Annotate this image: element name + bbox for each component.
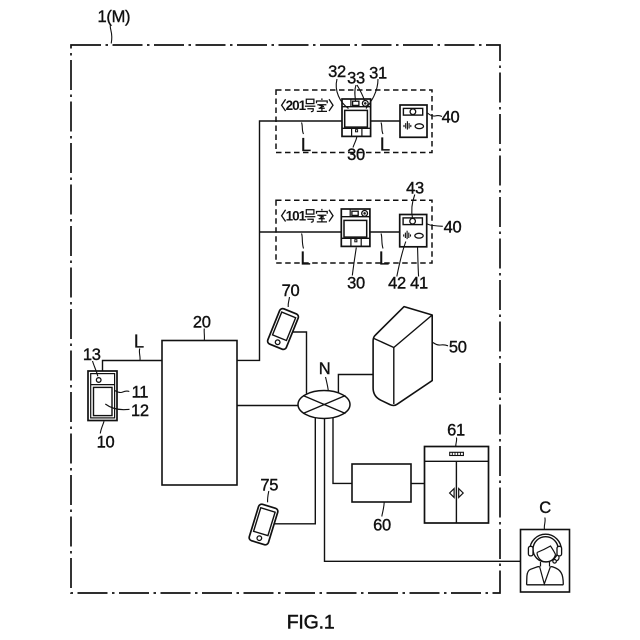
svg-text:201: 201 <box>286 98 307 113</box>
svg-text:1(M): 1(M) <box>98 8 131 26</box>
svg-text:50: 50 <box>449 339 467 357</box>
svg-text:32: 32 <box>328 63 346 81</box>
svg-text:31: 31 <box>369 65 387 83</box>
svg-text:75: 75 <box>260 477 278 495</box>
svg-text:L: L <box>300 248 310 269</box>
svg-text:12: 12 <box>131 402 149 420</box>
svg-text:13: 13 <box>83 346 101 364</box>
svg-text:41: 41 <box>410 275 428 293</box>
svg-text:40: 40 <box>444 219 462 237</box>
svg-text:20: 20 <box>193 314 211 332</box>
svg-text:60: 60 <box>373 517 391 535</box>
svg-text:30: 30 <box>347 146 365 164</box>
svg-text:C: C <box>539 499 551 517</box>
svg-text:N: N <box>319 360 331 378</box>
svg-text:L: L <box>301 134 311 155</box>
svg-text:L: L <box>379 248 389 269</box>
svg-text:43: 43 <box>406 180 424 198</box>
svg-text:FIG.1: FIG.1 <box>287 612 335 634</box>
svg-text:70: 70 <box>282 282 300 300</box>
svg-text:30: 30 <box>347 275 365 293</box>
svg-text:10: 10 <box>97 434 115 452</box>
svg-text:101: 101 <box>286 209 307 224</box>
svg-text:61: 61 <box>447 422 465 440</box>
svg-text:42: 42 <box>388 275 406 293</box>
svg-text:L: L <box>380 134 390 155</box>
svg-text:33: 33 <box>347 70 365 88</box>
svg-text:L: L <box>134 331 144 352</box>
svg-text:11: 11 <box>132 384 149 402</box>
svg-text:40: 40 <box>442 109 460 127</box>
